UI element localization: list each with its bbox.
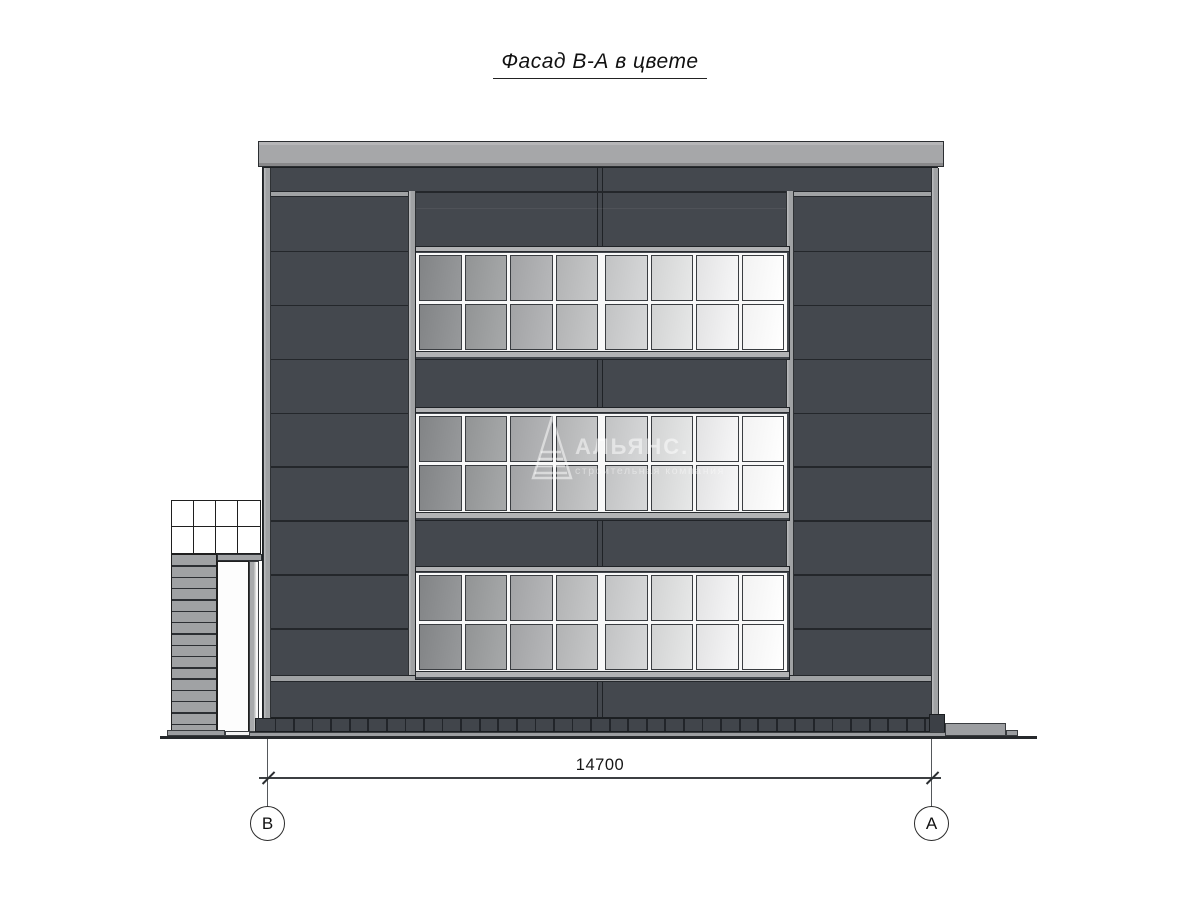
canopy-pane (194, 527, 216, 553)
window-pane (419, 416, 462, 462)
window-pane (510, 255, 553, 301)
plinth-tick (887, 719, 889, 731)
plinth-tick (906, 719, 908, 731)
window-pane (419, 575, 462, 621)
window-pane (742, 304, 785, 350)
canopy-pane (172, 527, 194, 553)
dimension-label-wrap: 14700 (450, 756, 750, 775)
plinth-tick (683, 719, 685, 731)
extension-line-left (267, 739, 268, 807)
corner-pier (929, 714, 945, 733)
panel-joint (271, 413, 408, 415)
panel-joint (271, 574, 408, 576)
canopy-pane (216, 527, 238, 553)
stair-slat (172, 690, 216, 691)
plinth-tick (646, 719, 648, 731)
entrance-canopy-glazing (171, 500, 261, 554)
plinth-tick (497, 719, 499, 731)
canopy-pane (216, 501, 238, 527)
plinth-tick (609, 719, 611, 731)
panel-joint (794, 305, 931, 307)
panel-joint (271, 251, 408, 253)
window-pane (556, 465, 599, 511)
window-pane (696, 416, 739, 462)
plinth-tick (757, 719, 759, 731)
panel-joint (271, 520, 408, 522)
plinth (255, 718, 944, 732)
plinth-tick (535, 719, 537, 731)
window-pane (510, 465, 553, 511)
panel-joint (271, 466, 408, 468)
ramp-step-1 (945, 723, 1006, 736)
window-pane (742, 465, 785, 511)
drawing-title: Фасад В-А в цвете (493, 50, 706, 79)
panel-joint (271, 305, 408, 307)
plinth-tick (924, 719, 926, 731)
plinth-tick (627, 719, 629, 731)
window-pane (605, 416, 648, 462)
window-pane (605, 465, 648, 511)
window-pane (419, 304, 462, 350)
window-pane (651, 624, 694, 670)
facade-body (262, 167, 938, 718)
window-pane (465, 624, 508, 670)
plinth-tick (664, 719, 666, 731)
window-pane (510, 575, 553, 621)
plinth-tick (813, 719, 815, 731)
stair-slat (172, 577, 216, 578)
title-row: Фасад В-А в цвете (0, 50, 1200, 79)
plinth-tick (702, 719, 704, 731)
extension-line-right (931, 739, 932, 807)
window-pane (465, 575, 508, 621)
panel-joint (794, 574, 931, 576)
plinth-tick (460, 719, 462, 731)
axis-marker-a-label: А (926, 814, 937, 834)
window-pane-area (416, 573, 787, 671)
window-pane (419, 465, 462, 511)
plinth-tick (312, 719, 314, 731)
stair-slat (172, 678, 216, 679)
window-pane-area (416, 414, 787, 512)
window-pane (651, 304, 694, 350)
panel-joints-right-section (794, 197, 931, 682)
window-pane (605, 575, 648, 621)
window-pane (742, 624, 785, 670)
window-pane (605, 304, 648, 350)
stair-slat (172, 599, 216, 600)
stair-slat (172, 667, 216, 668)
window-pane (605, 255, 648, 301)
entrance-lintel (217, 554, 262, 561)
stair-slat (172, 588, 216, 589)
pilaster-left-edge (263, 168, 271, 719)
window-pane (510, 624, 553, 670)
entrance-door-jamb (249, 561, 259, 734)
window-pane (510, 304, 553, 350)
window-pane (696, 255, 739, 301)
window-head-strip (416, 408, 789, 413)
plinth-tick (720, 719, 722, 731)
dimension-value: 14700 (576, 756, 624, 774)
stair-slat (172, 565, 216, 566)
stair-slat (172, 633, 216, 634)
axis-marker-b-label: В (262, 814, 273, 834)
window-pane-area (416, 253, 787, 351)
axis-marker-b: В (250, 806, 285, 841)
window-sill-strip (416, 671, 789, 677)
window-sill-strip (416, 512, 789, 518)
window-pane (556, 255, 599, 301)
window-pane (510, 416, 553, 462)
plinth-tick (794, 719, 796, 731)
panel-joint (794, 520, 931, 522)
drawing-sheet: Фасад В-А в цвете (0, 0, 1200, 900)
entrance-door (217, 561, 249, 734)
panel-joint (794, 251, 931, 253)
window-head-strip (416, 247, 789, 252)
stair-slat (172, 712, 216, 713)
plinth-tick (869, 719, 871, 731)
plinth-tick (349, 719, 351, 731)
window-pane (696, 465, 739, 511)
canopy-pane (194, 501, 216, 527)
canopy-pane (238, 527, 260, 553)
plinth-tick (739, 719, 741, 731)
panel-joints-left-section (271, 197, 408, 682)
window-pane (742, 255, 785, 301)
panel-joint (271, 359, 408, 361)
plinth-tick (516, 719, 518, 731)
window-band (415, 407, 790, 521)
plinth-tick (330, 719, 332, 731)
window-pane (465, 304, 508, 350)
window-pane (465, 255, 508, 301)
facade-faint-joint (416, 208, 786, 209)
plinth-tick (553, 719, 555, 731)
panel-joint (794, 413, 931, 415)
window-sill-strip (416, 351, 789, 357)
window-pane (465, 465, 508, 511)
canopy-pane (238, 501, 260, 527)
window-pane (465, 416, 508, 462)
plinth-tick (367, 719, 369, 731)
panel-joint (271, 628, 408, 630)
canopy-pane (172, 501, 194, 527)
roof-parapet (258, 141, 944, 167)
plinth-tick (832, 719, 834, 731)
plinth-tick (386, 719, 388, 731)
window-pane (696, 624, 739, 670)
window-pane (556, 416, 599, 462)
window-pane (696, 575, 739, 621)
stair-slat (172, 701, 216, 702)
plinth-tick (479, 719, 481, 731)
window-pane (556, 575, 599, 621)
plinth-tick (850, 719, 852, 731)
window-pane (556, 624, 599, 670)
window-pane (696, 304, 739, 350)
axis-marker-a: А (914, 806, 949, 841)
stair-slat (172, 656, 216, 657)
window-pane (651, 255, 694, 301)
entrance-stairs (171, 554, 217, 735)
window-pane (651, 575, 694, 621)
window-pane (605, 624, 648, 670)
panel-joint (794, 359, 931, 361)
stair-slat (172, 611, 216, 612)
plinth-tick (442, 719, 444, 731)
plinth-tick (275, 719, 277, 731)
plinth-tick (423, 719, 425, 731)
plinth-tick (405, 719, 407, 731)
window-pane (742, 416, 785, 462)
window-pane (651, 416, 694, 462)
stair-slat (172, 724, 216, 725)
ground-line (160, 736, 1037, 739)
window-band (415, 566, 790, 680)
plinth-tick (293, 719, 295, 731)
pilaster-right-edge (931, 168, 939, 719)
plinth-tick (572, 719, 574, 731)
window-pane (651, 465, 694, 511)
dimension-line (259, 777, 941, 779)
stair-slat (172, 645, 216, 646)
stair-slat (172, 622, 216, 623)
window-pane (556, 304, 599, 350)
plinth-tick (776, 719, 778, 731)
window-head-strip (416, 567, 789, 572)
panel-joint (794, 628, 931, 630)
plinth-tick (590, 719, 592, 731)
panel-joint (794, 466, 931, 468)
window-band (415, 246, 790, 360)
window-pane (419, 255, 462, 301)
window-pane (419, 624, 462, 670)
window-pane (742, 575, 785, 621)
